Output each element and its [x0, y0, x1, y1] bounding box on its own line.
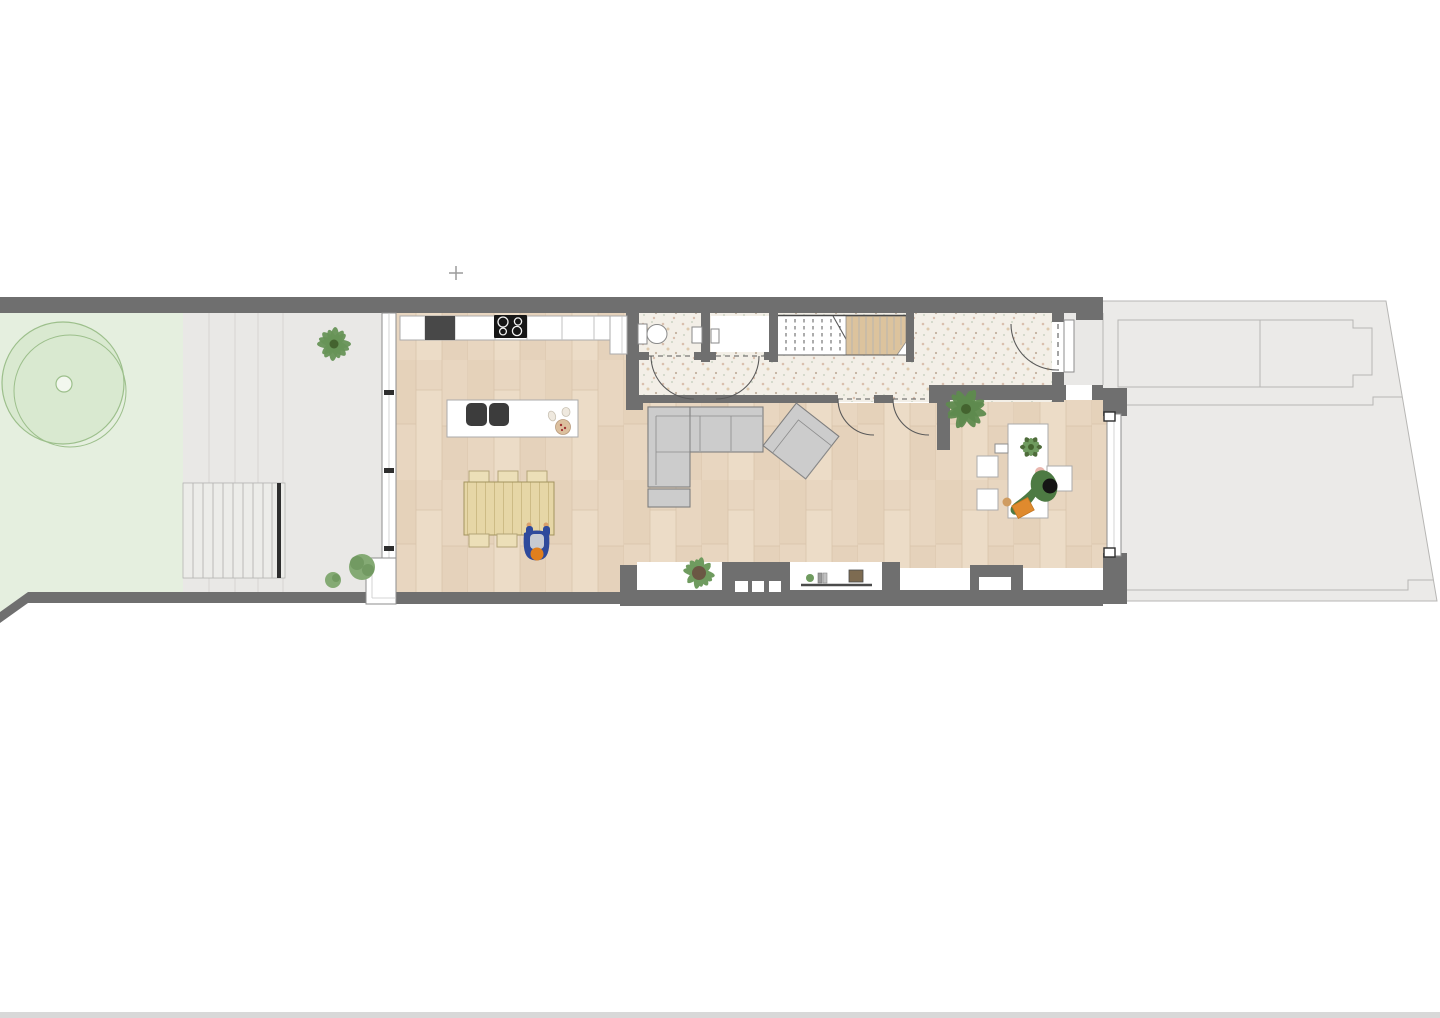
wall-closet-east: [769, 313, 778, 362]
party-wall-north-end: [1076, 297, 1103, 320]
wall-closet-south-west-stub: [701, 352, 716, 360]
desk-side-tab: [995, 444, 1008, 453]
wall-closet-south-east-stub: [764, 352, 769, 360]
console-book1: [818, 573, 822, 583]
console-book2: [823, 573, 827, 583]
sill-niche-c: [900, 568, 970, 590]
wall-garden-south: [28, 592, 396, 603]
hand-basin: [692, 327, 702, 343]
wall-wc-south-east-stub: [694, 352, 701, 360]
terrace-steps: [183, 483, 285, 578]
wall-hall-south-pier: [874, 395, 893, 403]
toilet-tank: [638, 324, 647, 344]
tree-trunk: [56, 376, 72, 392]
sill-niche-d: [1023, 568, 1103, 590]
console-box: [849, 570, 863, 582]
cup: [1003, 498, 1012, 507]
console-plant: [806, 574, 814, 582]
person1-shirt: [530, 534, 544, 549]
dining-chair-s1: [469, 534, 489, 547]
closet-floor: [711, 316, 769, 352]
wall-stair-east-pier: [906, 313, 914, 362]
porch-step-notch: [1066, 385, 1092, 400]
toilet-bowl: [647, 325, 667, 344]
dining-chair-s2: [497, 534, 517, 547]
east-bay-junction-bottom: [1104, 548, 1115, 557]
ottoman: [648, 489, 690, 507]
crosshair-cursor: [449, 266, 463, 280]
stair-wood-treads: [846, 316, 906, 355]
kitchen-dining-floor: [396, 313, 626, 592]
island-sink-right: [489, 403, 509, 426]
desk-chair-w1: [977, 456, 998, 477]
person2-hair: [1043, 479, 1058, 494]
person1-head: [531, 548, 544, 561]
floor-plan-canvas: [0, 0, 1440, 1018]
island-sink-left: [466, 403, 487, 426]
front-yard: [1103, 301, 1437, 601]
tall-appliance: [425, 316, 455, 340]
step-edge-board: [277, 483, 281, 578]
desk-chair-w2: [977, 489, 998, 510]
east-bay-junction-top: [1104, 412, 1115, 421]
wall-living-corner-step: [620, 565, 637, 606]
kitchen-island: [447, 400, 578, 437]
front-door-threshold: [1064, 320, 1074, 372]
wall-block-bc: [882, 562, 900, 590]
cooktop: [494, 315, 527, 338]
wall-kitchen-south: [396, 592, 625, 604]
wall-bay-south-block: [1103, 553, 1127, 604]
bottom-screen-bar[interactable]: [0, 1012, 1440, 1018]
party-wall-north: [0, 297, 1103, 313]
kitchen-tall-cabinet: [610, 316, 627, 354]
dining-table: [464, 482, 554, 535]
terrace-bush-small: [325, 572, 341, 588]
wall-kitchen-hall: [626, 313, 639, 410]
wall-wc-south-west-stub: [635, 352, 649, 360]
closet-shelf: [711, 329, 719, 343]
wall-hall-south: [639, 395, 838, 403]
wall-living-south: [637, 590, 1103, 606]
sill-plant-pot: [692, 566, 706, 580]
floor-plan-drawing: [0, 0, 1440, 1018]
terrace-bush: [349, 554, 375, 580]
